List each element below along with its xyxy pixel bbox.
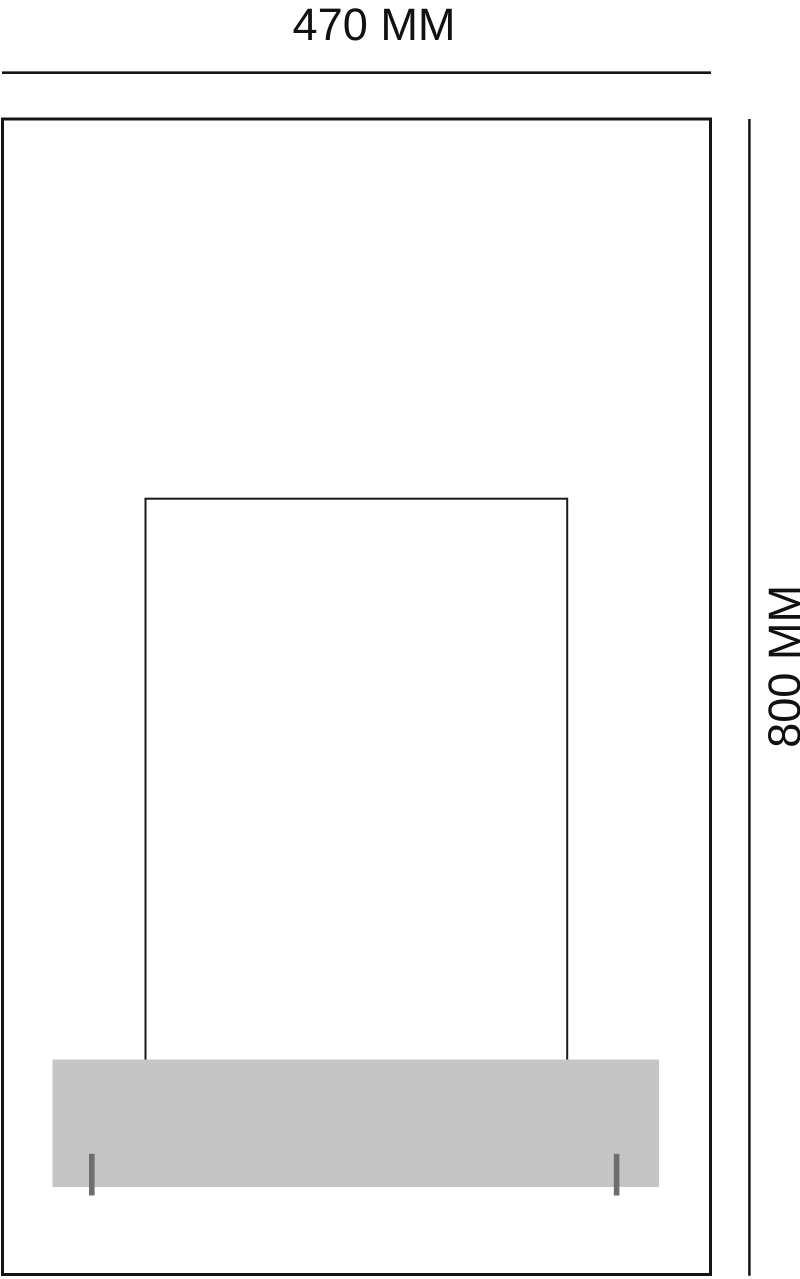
- svg-text:470 MM: 470 MM: [293, 0, 456, 50]
- svg-text:800 MM: 800 MM: [759, 585, 800, 748]
